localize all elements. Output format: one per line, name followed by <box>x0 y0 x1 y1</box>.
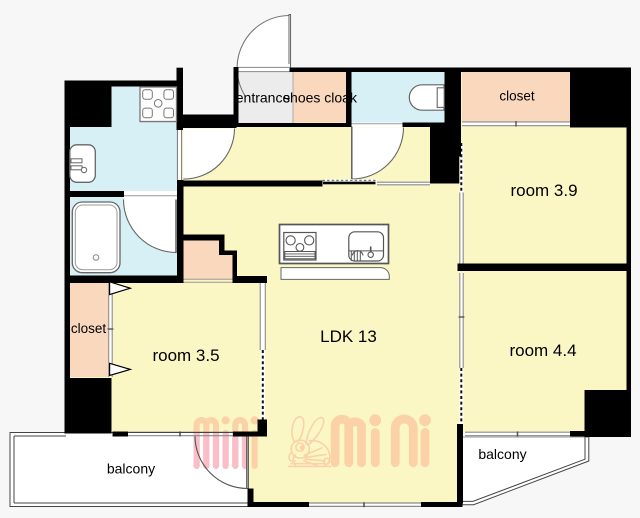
svg-text:balcony: balcony <box>107 461 155 477</box>
svg-text:LDK 13: LDK 13 <box>320 327 377 346</box>
svg-text:closet: closet <box>499 89 535 104</box>
svg-text:balcony: balcony <box>478 446 526 462</box>
svg-text:room 3.5: room 3.5 <box>152 346 219 365</box>
svg-text:shoes cloak: shoes cloak <box>283 90 358 106</box>
svg-text:room 3.9: room 3.9 <box>510 181 577 200</box>
svg-text:closet: closet <box>71 321 107 336</box>
svg-text:room 4.4: room 4.4 <box>509 341 576 360</box>
